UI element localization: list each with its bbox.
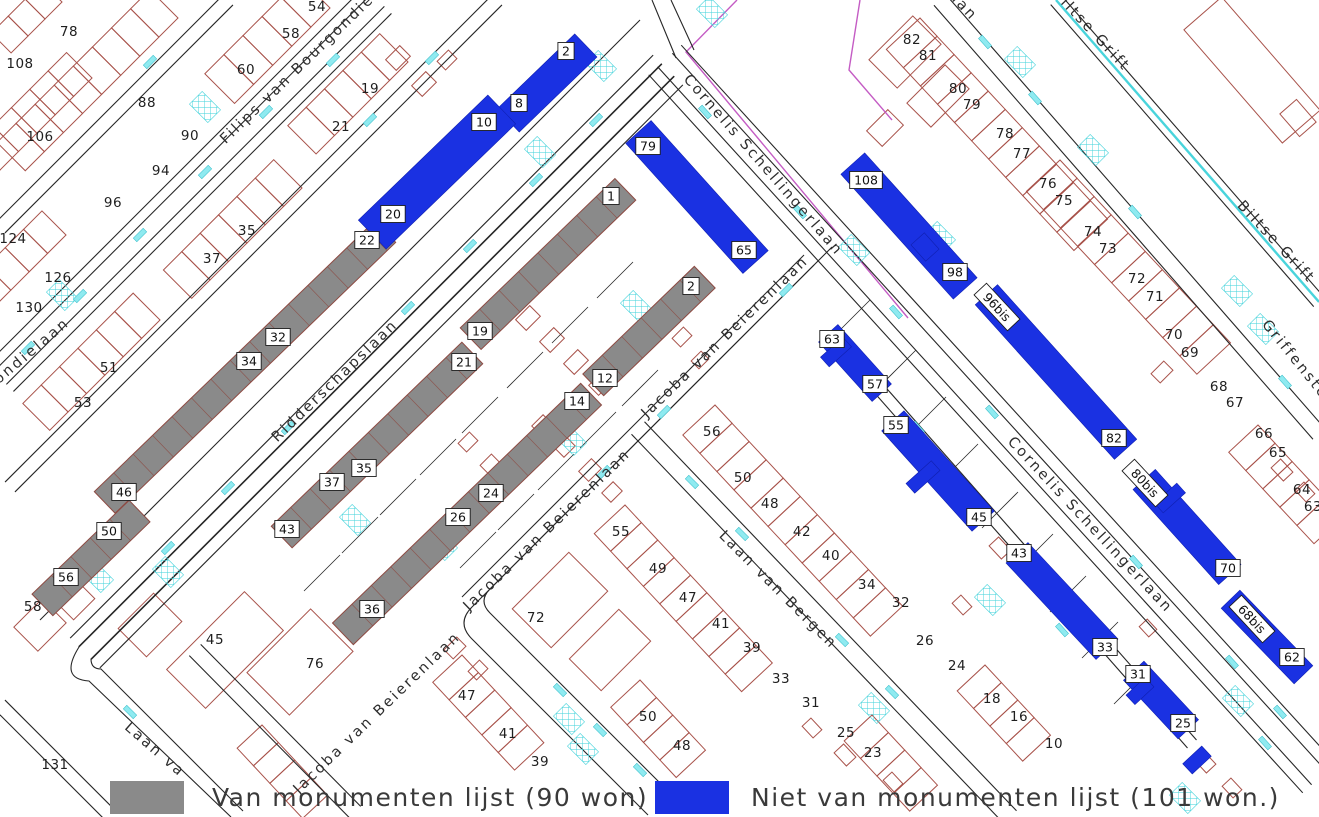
house-number: 126	[44, 270, 71, 286]
monument-building-label: 26	[446, 509, 470, 526]
house-number: 51	[100, 360, 118, 376]
house-number: 130	[15, 300, 42, 316]
house-number: 10	[1045, 736, 1063, 752]
svg-text:19: 19	[472, 324, 488, 339]
monument-building-label: 37	[320, 474, 344, 491]
monument-building-label: 50	[97, 523, 121, 540]
house-number: 131	[41, 757, 68, 773]
house-number: 64	[1293, 482, 1311, 498]
non-monument-building-label: 55	[884, 417, 908, 434]
monument-building-label: 2	[683, 278, 699, 295]
monument-building-label: 32	[266, 329, 290, 346]
house-number: 55	[612, 524, 630, 540]
monument-building-label: 14	[565, 393, 589, 410]
house-number: 94	[152, 163, 170, 179]
svg-text:2: 2	[687, 279, 695, 294]
house-number: 72	[527, 610, 545, 626]
house-number: 106	[26, 129, 53, 145]
house-number: 53	[74, 395, 92, 411]
non-monument-building	[1183, 746, 1212, 774]
house-number: 41	[712, 616, 730, 632]
non-monument-building-label: 108	[850, 172, 883, 189]
svg-text:63: 63	[824, 332, 840, 347]
house-number: 54	[308, 0, 326, 15]
svg-text:79: 79	[640, 139, 656, 154]
monument-building-label: 22	[355, 232, 379, 249]
monument-building-label: 36	[360, 601, 384, 618]
svg-text:62: 62	[1284, 650, 1300, 665]
svg-text:65: 65	[736, 243, 752, 258]
svg-text:43: 43	[1011, 546, 1027, 561]
house-number: 71	[1146, 289, 1164, 305]
legend-swatch-monument	[110, 781, 184, 814]
house-number: 50	[734, 470, 752, 486]
house-number: 77	[1013, 146, 1031, 162]
legend-label-non-monument: Niet van monumenten lijst (101 won.)	[751, 783, 1280, 812]
street-label: Biltse Grift	[1234, 198, 1318, 287]
svg-text:35: 35	[356, 461, 372, 476]
house-number: 56	[703, 424, 721, 440]
house-number: 78	[996, 126, 1014, 142]
house-number: 16	[1010, 709, 1028, 725]
street-label: Griffensteyn	[1258, 317, 1319, 420]
house-number: 66	[1255, 426, 1273, 442]
svg-text:21: 21	[456, 355, 472, 370]
street-label: Laan van Bergen	[715, 528, 840, 653]
house-number: 31	[802, 695, 820, 711]
svg-text:1: 1	[607, 189, 615, 204]
house-number: 58	[24, 599, 42, 615]
monument-building-label: 24	[479, 485, 503, 502]
monument-building-label: 21	[452, 354, 476, 371]
house-number: 25	[837, 725, 855, 741]
svg-text:22: 22	[359, 233, 375, 248]
house-number: 82	[903, 32, 921, 48]
non-monument-building-label: 10	[472, 114, 496, 131]
monument-building-label: 34	[237, 353, 261, 370]
house-number: 24	[948, 658, 966, 674]
monument-building-label: 19	[468, 323, 492, 340]
legend-item-monument: Van monumenten lijst (90 won)	[110, 781, 648, 814]
svg-text:33: 33	[1097, 640, 1113, 655]
non-monument-building-label: 57	[863, 376, 887, 393]
house-number: 88	[138, 95, 156, 111]
monument-building-label: 56	[54, 569, 78, 586]
svg-text:55: 55	[888, 418, 904, 433]
monument-building-label: 43	[275, 521, 299, 538]
house-number: 39	[531, 754, 549, 770]
non-monument-building-label: 79	[636, 138, 660, 155]
house-number: 21	[332, 119, 350, 135]
house-number: 48	[761, 496, 779, 512]
house-number: 79	[963, 97, 981, 113]
house-number: 42	[793, 524, 811, 540]
legend-label-monument: Van monumenten lijst (90 won)	[212, 783, 648, 812]
house-number: 58	[282, 26, 300, 42]
house-number: 37	[203, 251, 221, 267]
house-number: 69	[1181, 345, 1199, 361]
svg-text:2: 2	[562, 44, 570, 59]
svg-text:37: 37	[324, 475, 340, 490]
svg-text:24: 24	[483, 486, 499, 501]
house-number: 81	[919, 48, 937, 64]
house-number: 76	[1039, 176, 1057, 192]
svg-text:34: 34	[241, 354, 257, 369]
svg-text:14: 14	[569, 394, 585, 409]
house-number: 60	[237, 62, 255, 78]
svg-text:57: 57	[867, 377, 883, 392]
house-number: 32	[892, 595, 910, 611]
monument-building	[32, 500, 150, 615]
non-monument-building-label: 31	[1126, 666, 1150, 683]
house-number: 41	[499, 726, 517, 742]
street-label: Cornelis Schellingerlaan	[1004, 434, 1176, 617]
non-monument-building-label: 82	[1102, 430, 1126, 447]
non-monument-building-label: 25	[1171, 715, 1195, 732]
non-monument-building-label: 43	[1007, 545, 1031, 562]
svg-text:70: 70	[1220, 561, 1236, 576]
house-number: 35	[238, 223, 256, 239]
house-number: 48	[673, 738, 691, 754]
non-monument-buildings	[358, 34, 1312, 774]
non-monument-building-label: 62	[1280, 649, 1304, 666]
non-monument-building-label: 2	[558, 43, 574, 60]
house-number: 49	[649, 561, 667, 577]
svg-text:43: 43	[279, 522, 295, 537]
svg-text:45: 45	[971, 510, 987, 525]
street-label: Biltse Grift	[1049, 0, 1133, 75]
house-number: 23	[864, 745, 882, 761]
house-number: 75	[1055, 193, 1073, 209]
monument-building-label: 35	[352, 460, 376, 477]
non-monument-building-label: 63	[820, 331, 844, 348]
map-canvas: Filips van BourgondielaangondielaanRidde…	[0, 0, 1319, 817]
street-label: Jacoba van Beierenlaan	[290, 629, 464, 798]
svg-text:31: 31	[1130, 667, 1146, 682]
non-monument-building-label: 70	[1216, 560, 1240, 577]
non-monument-building-label: 8	[511, 95, 527, 112]
svg-text:8: 8	[515, 96, 523, 111]
svg-text:12: 12	[597, 371, 613, 386]
non-monument-building-label: 65	[732, 242, 756, 259]
svg-text:56: 56	[58, 570, 74, 585]
house-number: 76	[306, 656, 324, 672]
house-numbers: 7810888106909496124126130515354586019213…	[0, 0, 1319, 773]
legend-item-non-monument: Niet van monumenten lijst (101 won.)	[655, 781, 1280, 814]
house-number: 45	[206, 632, 224, 648]
house-number: 34	[858, 577, 876, 593]
street-label: Laan va	[121, 719, 188, 780]
house-number: 47	[679, 590, 697, 606]
house-number: 33	[772, 671, 790, 687]
house-number: 96	[104, 195, 122, 211]
svg-text:10: 10	[476, 115, 492, 130]
non-monument-building-label: 98	[943, 264, 967, 281]
house-number: 73	[1099, 241, 1117, 257]
house-number: 47	[458, 688, 476, 704]
house-number: 80	[949, 81, 967, 97]
svg-text:36: 36	[364, 602, 380, 617]
svg-text:46: 46	[116, 485, 132, 500]
house-number: 124	[0, 231, 27, 247]
house-number: 74	[1084, 224, 1102, 240]
non-monument-building	[497, 34, 597, 132]
house-number: 40	[822, 548, 840, 564]
non-monument-building-label: 45	[967, 509, 991, 526]
house-number: 19	[361, 81, 379, 97]
house-number: 78	[60, 24, 78, 40]
svg-text:98: 98	[947, 265, 963, 280]
svg-text:82: 82	[1106, 431, 1122, 446]
house-number: 67	[1226, 395, 1244, 411]
svg-text:108: 108	[854, 173, 878, 188]
street-label: aan	[945, 0, 980, 24]
monument-building-label: 1	[603, 188, 619, 205]
house-number: 50	[639, 709, 657, 725]
house-number: 26	[916, 633, 934, 649]
svg-text:20: 20	[385, 207, 401, 222]
house-number: 18	[983, 691, 1001, 707]
monument-building-label: 12	[593, 370, 617, 387]
non-monument-building-label: 20	[381, 206, 405, 223]
house-number: 65	[1269, 445, 1287, 461]
svg-text:32: 32	[270, 330, 286, 345]
house-number: 39	[743, 640, 761, 656]
house-number: 63	[1304, 499, 1319, 515]
map-page: Filips van BourgondielaangondielaanRidde…	[0, 0, 1319, 817]
house-number: 108	[6, 56, 33, 72]
house-number: 70	[1165, 327, 1183, 343]
svg-text:50: 50	[101, 524, 117, 539]
house-number: 72	[1128, 271, 1146, 287]
house-number: 68	[1210, 379, 1228, 395]
svg-text:26: 26	[450, 510, 466, 525]
house-number: 90	[181, 128, 199, 144]
legend-swatch-non-monument	[655, 781, 729, 814]
non-monument-building-label: 33	[1093, 639, 1117, 656]
monument-building-label: 46	[112, 484, 136, 501]
svg-text:25: 25	[1175, 716, 1191, 731]
